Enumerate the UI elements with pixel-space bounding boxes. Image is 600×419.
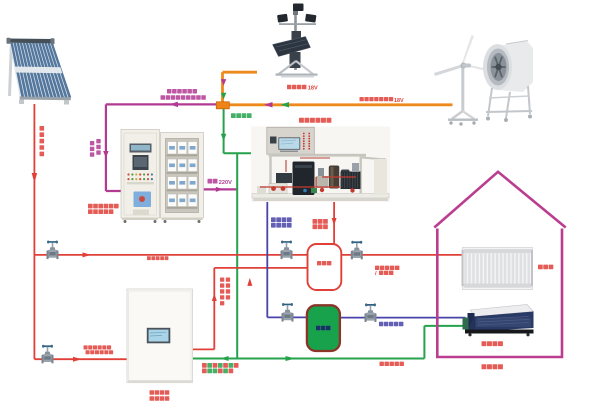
svg-text:220V: 220V — [219, 180, 232, 186]
svg-text:18V: 18V — [308, 86, 318, 92]
svg-text:18V: 18V — [394, 98, 404, 104]
